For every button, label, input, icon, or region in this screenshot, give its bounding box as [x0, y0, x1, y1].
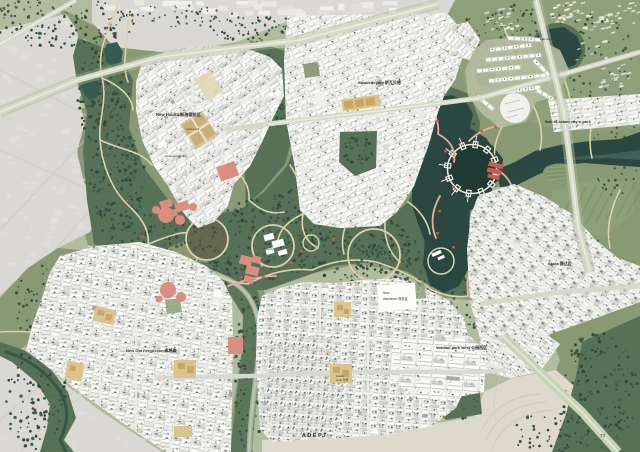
svg-text:University: University: [262, 247, 274, 251]
svg-text:Lake farm: Lake farm: [540, 37, 552, 41]
svg-text:Haidra mall: Haidra mall: [186, 127, 200, 131]
svg-text:Bab al-salam city e-park: Bab al-salam city e-park: [545, 119, 592, 124]
svg-text:New Haidra 新海德拉区: New Haidra 新海德拉区: [156, 111, 202, 118]
svg-text:downtown 商务区: downtown 商务区: [383, 296, 409, 301]
svg-text:73: 73: [600, 433, 606, 438]
svg-text:A D E P T: A D E P T: [302, 433, 327, 439]
svg-text:Swabedeyard 斯瓦贝德: Swabedeyard 斯瓦贝德: [358, 79, 401, 85]
svg-text:New: New: [383, 291, 390, 295]
svg-text:Central mall 中心: Central mall 中心: [165, 153, 188, 158]
svg-text:New Old Fergusson 弗格森: New Old Fergusson 弗格森: [126, 347, 178, 353]
svg-text:souk 市场: souk 市场: [336, 378, 348, 382]
svg-text:Saida 赛达区: Saida 赛达区: [548, 260, 572, 266]
svg-text:Verdian park west 公园西区: Verdian park west 公园西区: [436, 344, 487, 350]
